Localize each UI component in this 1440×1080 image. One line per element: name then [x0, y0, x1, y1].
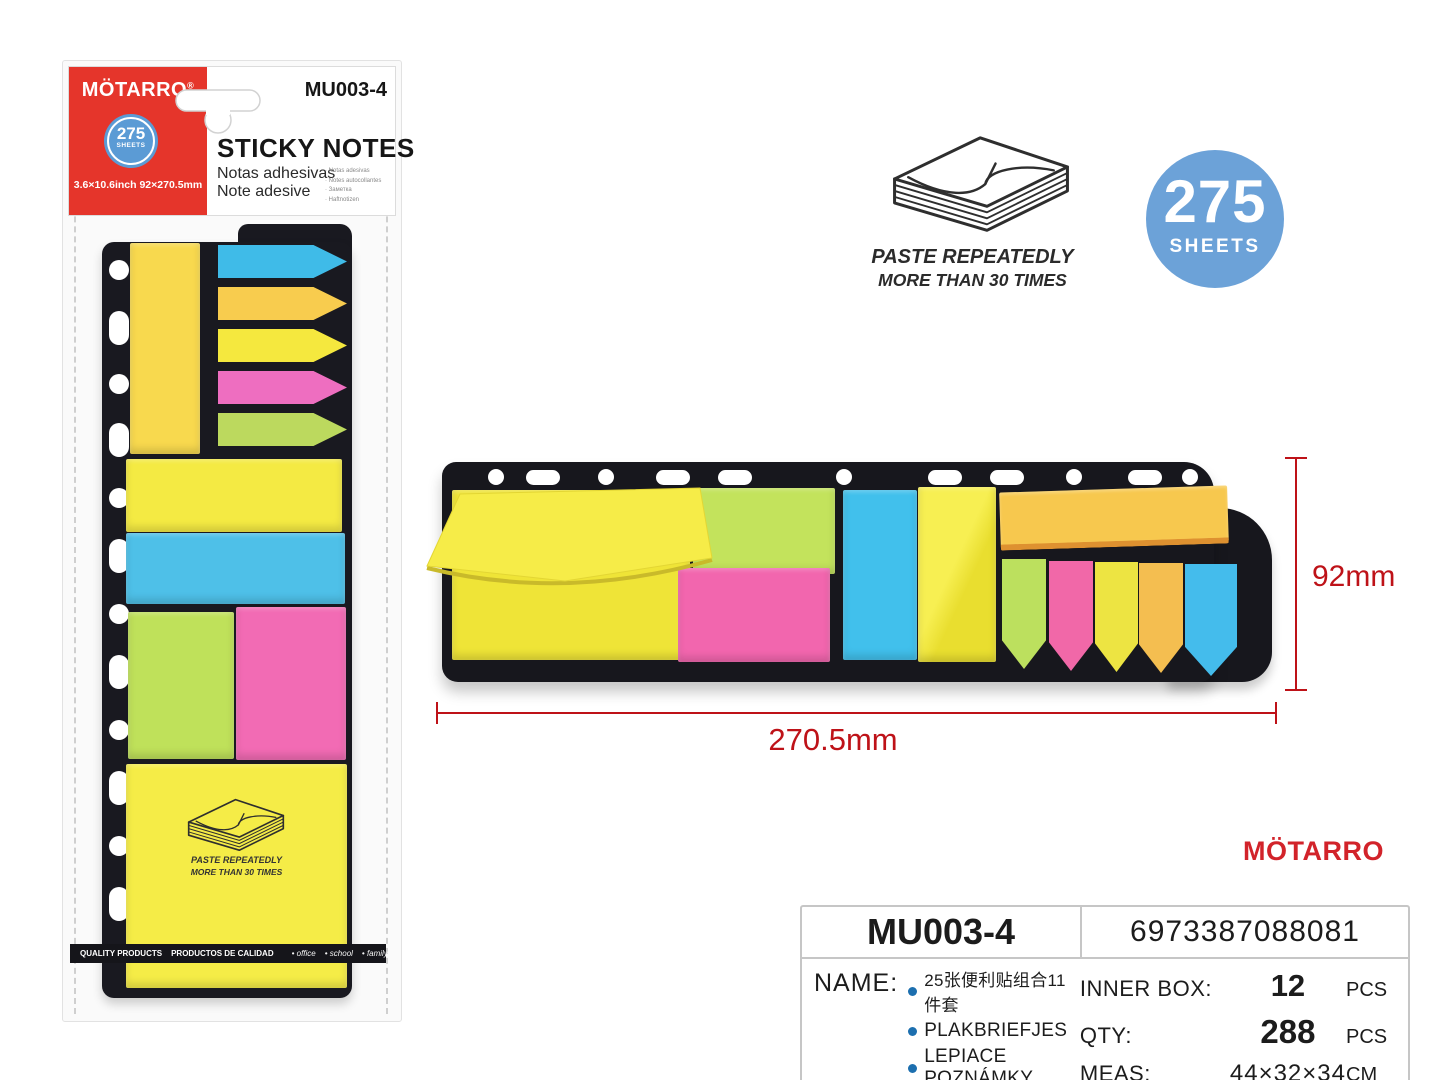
sheets-count: 275	[1146, 172, 1284, 232]
binder-hole	[836, 469, 852, 485]
spec-value: 12	[1230, 968, 1346, 1004]
spec-label: INNER BOX:	[1080, 976, 1230, 1002]
size-spec-text: 3.6×10.6inch 92×270.5mm	[69, 179, 207, 191]
product-spec-table: MU003-4 6973387088081 NAME: 25张便利贴组合11件套…	[800, 905, 1410, 1080]
model-number-package: MU003-4	[249, 79, 387, 102]
width-dimension-line	[436, 712, 1277, 714]
lifted-sheet	[415, 478, 765, 608]
pad-blue-band	[126, 533, 345, 604]
binder-hole	[1066, 469, 1082, 485]
binder-hole	[109, 720, 129, 740]
sheets-badge-small: 275 SHEETS	[107, 117, 155, 165]
spec-row-meas: MEAS: 44×32×34 CM	[1080, 1060, 1400, 1080]
language-item: · Haftnotizen	[325, 196, 381, 206]
spec-unit: PCS	[1346, 1026, 1400, 1049]
footer-tag-school: • school	[325, 949, 353, 958]
binder-hole	[928, 470, 962, 485]
binder-hole	[990, 470, 1024, 485]
dimension-cap	[1285, 457, 1307, 459]
height-dimension-label: 92mm	[1312, 560, 1395, 594]
name-item: PLAKBRIEFJES	[908, 1020, 1080, 1042]
bullet-dot-icon	[908, 987, 917, 996]
spec-label: QTY:	[1080, 1023, 1230, 1049]
spec-table-header-row: MU003-4 6973387088081	[802, 907, 1408, 959]
height-dimension-line	[1295, 458, 1297, 690]
sheets-unit: SHEETS	[109, 142, 153, 149]
dimension-cap	[436, 702, 438, 724]
pad-yellow-band	[126, 459, 342, 532]
name-text: 25张便利贴组合11件套	[924, 966, 1080, 1016]
binder-hole	[1182, 469, 1198, 485]
footer-slash-decoration	[280, 948, 285, 960]
hero-pad-yellow-strip	[918, 487, 996, 662]
binder-hole	[109, 655, 129, 689]
hero-pad-orange-strip	[999, 485, 1229, 550]
spec-unit: CM	[1346, 1064, 1400, 1080]
language-item: · Заметка	[325, 186, 381, 196]
binder-hole	[1128, 470, 1162, 485]
printed-paste-line1: PASTE REPEATEDLY	[126, 855, 347, 865]
paste-note-line2: MORE THAN 30 TIMES	[860, 270, 1085, 291]
paste-note-line1: PASTE REPEATEDLY	[860, 246, 1085, 269]
spec-value: 288	[1230, 1013, 1346, 1051]
binder-hole	[109, 311, 129, 345]
dimension-cap	[1275, 702, 1277, 724]
spec-section: INNER BOX: 12 PCS QTY: 288 PCS MEAS: 44×…	[1080, 966, 1400, 1080]
language-list: · Notas adesivas · Notes autocollantes ·…	[325, 167, 381, 205]
pad-yellow-tall	[130, 243, 200, 454]
name-list: 25张便利贴组合11件套 PLAKBRIEFJES LEPIACE POZNÁM…	[908, 966, 1080, 1080]
brand-text: MÖTARRO	[82, 79, 187, 101]
product-subtitle-it: Note adesive	[217, 183, 310, 201]
spec-table-body-row: NAME: 25张便利贴组合11件套 PLAKBRIEFJES LEPIACE …	[802, 959, 1408, 1080]
barcode-number-cell: 6973387088081	[1082, 907, 1408, 957]
name-label: NAME:	[814, 969, 898, 1080]
product-subtitle-es: Notas adhesivas	[217, 165, 335, 183]
dimension-cap	[1285, 689, 1307, 691]
name-section: NAME: 25张便利贴组合11件套 PLAKBRIEFJES LEPIACE …	[814, 966, 1080, 1080]
package-footer-bar: QUALITY PRODUCTS PRODUCTOS DE CALIDAD • …	[70, 944, 386, 963]
binder-hole	[109, 604, 129, 624]
name-item: LEPIACE POZNÁMKY	[908, 1046, 1080, 1080]
spec-value: 44×32×34	[1230, 1060, 1346, 1080]
bullet-dot-icon	[908, 1064, 917, 1073]
width-dimension-label: 270.5mm	[733, 722, 933, 758]
bullet-dot-icon	[908, 1027, 917, 1036]
name-item: 25张便利贴组合11件套	[908, 966, 1080, 1016]
binder-hole	[109, 374, 129, 394]
brand-logo-footer: MÖTARRO	[1243, 836, 1384, 867]
spec-unit: PCS	[1346, 979, 1400, 1002]
binder-hole	[109, 260, 129, 280]
printed-paste-line2: MORE THAN 30 TIMES	[126, 867, 347, 877]
hero-pad-blue-strip	[843, 490, 917, 660]
pad-pink	[236, 607, 346, 760]
product-title: STICKY NOTES	[217, 133, 415, 164]
sticky-pad-icon	[886, 124, 1076, 239]
sheets-count: 275	[109, 125, 153, 142]
language-item: · Notas adesivas	[325, 167, 381, 177]
spec-row-inner-box: INNER BOX: 12 PCS	[1080, 968, 1400, 1004]
footer-quality-en: QUALITY PRODUCTS	[80, 949, 162, 958]
model-number-cell: MU003-4	[802, 907, 1082, 957]
spec-row-qty: QTY: 288 PCS	[1080, 1013, 1400, 1051]
product-sheet: MÖTARRO® 275 SHEETS 3.6×10.6inch 92×270.…	[0, 0, 1440, 1080]
footer-quality-es: PRODUCTOS DE CALIDAD	[171, 949, 274, 958]
sticky-pad-icon	[184, 792, 288, 855]
spec-label: MEAS:	[1080, 1061, 1230, 1080]
footer-tag-office: • office	[292, 949, 316, 958]
language-item: · Notes autocollantes	[325, 177, 381, 187]
pad-green	[128, 612, 234, 759]
binder-hole	[109, 423, 129, 457]
name-text: LEPIACE POZNÁMKY	[924, 1046, 1080, 1080]
sheets-badge-large: 275 SHEETS	[1146, 150, 1284, 288]
footer-tag-family: • family	[362, 949, 388, 958]
header-card: MÖTARRO® 275 SHEETS 3.6×10.6inch 92×270.…	[68, 66, 396, 216]
name-text: PLAKBRIEFJES	[924, 1020, 1067, 1042]
sheets-unit: SHEETS	[1146, 236, 1284, 258]
